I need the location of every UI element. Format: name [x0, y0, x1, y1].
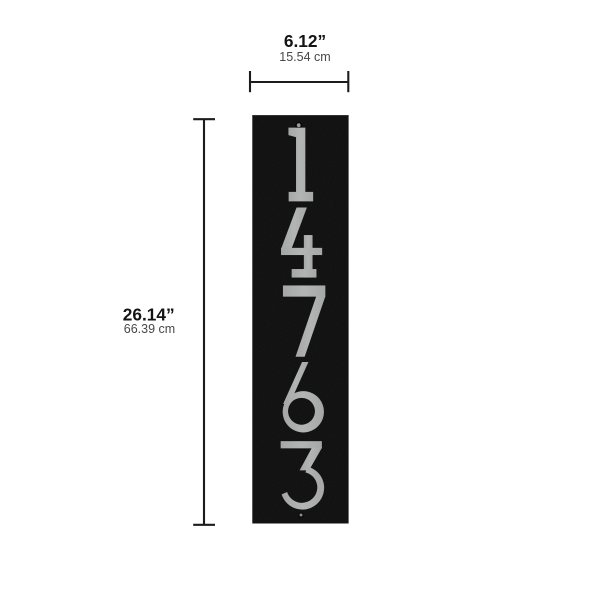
svg-text:66.39 cm: 66.39 cm — [124, 322, 175, 336]
svg-text:6.12”: 6.12” — [284, 31, 326, 51]
svg-text:15.54 cm: 15.54 cm — [279, 50, 330, 64]
